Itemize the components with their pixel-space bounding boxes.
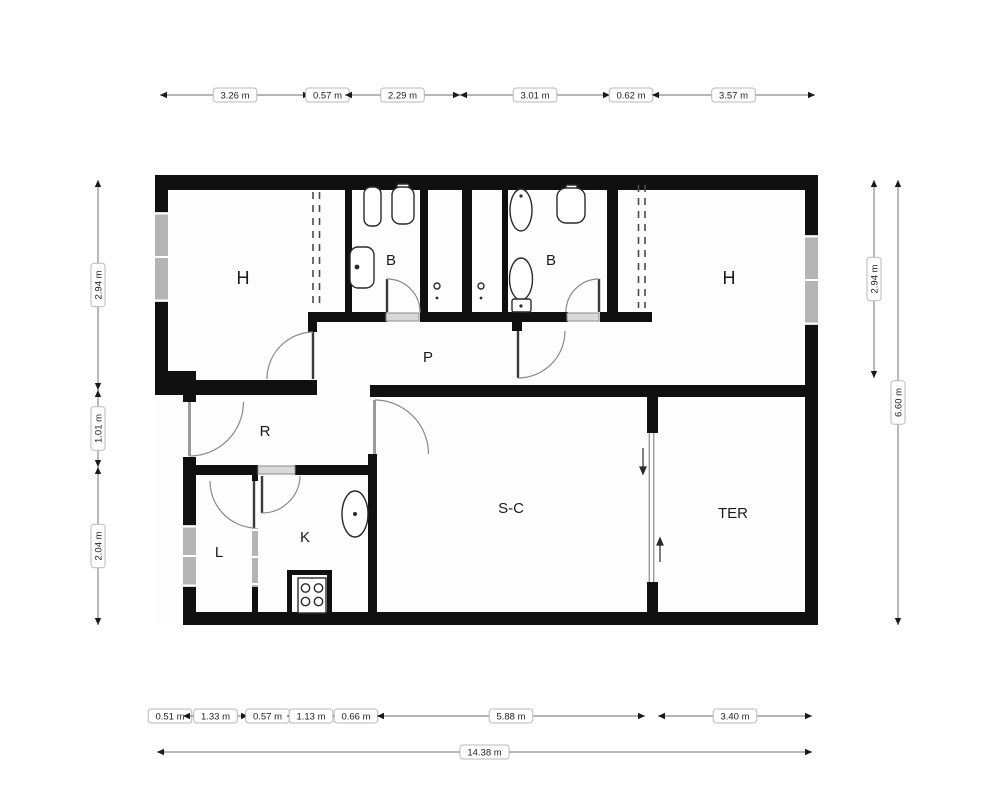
toilet-icon (510, 258, 533, 312)
dim-label-bottom-detail-4: 0.66 m (334, 709, 378, 723)
room-label-living-dining: S-C (498, 500, 524, 517)
washbasin-icon (557, 185, 585, 223)
dim-arrow (95, 180, 101, 187)
dim-label-text: 1.13 m (296, 711, 325, 722)
room-label-kitchen: K (300, 529, 310, 546)
glazed-partition-laundry-kitchen (252, 528, 258, 587)
dim-arrow (460, 92, 467, 98)
floor-plan-page: HBBHPRLKS-CTER 3.26 m0.57 m2.29 m3.01 m0… (0, 0, 1000, 800)
dim-label-bottom-detail-2: 0.57 m (246, 709, 290, 723)
dim-arrow (95, 383, 101, 390)
dim-label-bottom-detail-1: 1.33 m (194, 709, 238, 723)
room-label-entry-hall: R (260, 423, 271, 440)
window-laundry (183, 525, 196, 587)
dim-label-text: 1.33 m (201, 711, 230, 722)
dim-label-text: 2.04 m (93, 531, 104, 560)
dim-label-text: 0.66 m (341, 711, 370, 722)
bidet-icon (510, 189, 532, 231)
toilet-icon (392, 184, 414, 224)
room-label-bedroom-right: H (723, 268, 736, 288)
dim-label-text: 0.57 m (253, 711, 282, 722)
dim-arrow (95, 618, 101, 625)
dim-arrow (805, 713, 812, 719)
dim-label-text: 0.62 m (616, 90, 645, 101)
dim-label-top-4: 0.62 m (609, 88, 653, 102)
dim-label-text: 0.51 m (155, 711, 184, 722)
window-bedroom-right (805, 235, 818, 325)
room-label-terrace: TER (718, 505, 748, 522)
dim-arrow (895, 180, 901, 187)
dim-label-left-2: 2.04 m (91, 524, 105, 568)
stove-burners-icon (298, 578, 326, 613)
dim-arrow (871, 371, 877, 378)
room-label-hallway: P (423, 349, 433, 366)
dim-arrow (805, 749, 812, 755)
room-label-laundry: L (215, 544, 223, 561)
floor-plan-svg: HBBHPRLKS-CTER 3.26 m0.57 m2.29 m3.01 m0… (0, 0, 1000, 800)
dim-arrow (160, 92, 167, 98)
dim-label-text: 3.26 m (220, 90, 249, 101)
dim-label-bottom-total-0: 14.38 m (460, 745, 509, 759)
dim-arrow (95, 390, 101, 397)
dim-label-text: 6.60 m (893, 388, 904, 417)
dim-label-bottom-detail-5: 5.88 m (489, 709, 533, 723)
dim-arrow (157, 749, 164, 755)
dim-label-top-0: 3.26 m (213, 88, 257, 102)
dim-arrow (638, 713, 645, 719)
dim-arrow (895, 618, 901, 625)
room-label-bedroom-left: H (237, 268, 250, 288)
dim-label-top-5: 3.57 m (712, 88, 756, 102)
washbasin-icon (350, 247, 374, 288)
kitchen-sink-icon (342, 491, 368, 537)
dim-label-bottom-detail-6: 3.40 m (713, 709, 757, 723)
dim-label-left-0: 2.94 m (91, 263, 105, 307)
dim-arrow (658, 713, 665, 719)
dim-label-top-2: 2.29 m (381, 88, 425, 102)
dim-label-right-inner-0: 2.94 m (867, 257, 881, 301)
room-label-bathroom-left: B (386, 252, 396, 269)
dim-arrow (808, 92, 815, 98)
room-label-bathroom-right: B (546, 252, 556, 269)
dim-arrow (871, 180, 877, 187)
dim-label-text: 3.57 m (719, 90, 748, 101)
dim-label-text: 2.94 m (93, 270, 104, 299)
dim-label-text: 1.01 m (93, 414, 104, 443)
dim-label-right-outer-0: 6.60 m (891, 381, 905, 425)
dim-label-left-1: 1.01 m (91, 407, 105, 451)
bidet-icon (364, 187, 381, 226)
dim-label-text: 2.29 m (388, 90, 417, 101)
dim-label-text: 14.38 m (467, 747, 501, 758)
dim-arrow (95, 467, 101, 474)
dim-label-top-1: 0.57 m (306, 88, 350, 102)
dim-label-top-3: 3.01 m (513, 88, 557, 102)
dim-label-text: 0.57 m (313, 90, 342, 101)
dim-arrow (95, 460, 101, 467)
dim-label-text: 3.01 m (520, 90, 549, 101)
dim-arrow (453, 92, 460, 98)
dim-label-text: 2.94 m (869, 264, 880, 293)
dim-label-text: 5.88 m (496, 711, 525, 722)
window-bedroom-left (155, 212, 168, 302)
dim-label-bottom-detail-3: 1.13 m (289, 709, 333, 723)
dim-label-text: 3.40 m (720, 711, 749, 722)
